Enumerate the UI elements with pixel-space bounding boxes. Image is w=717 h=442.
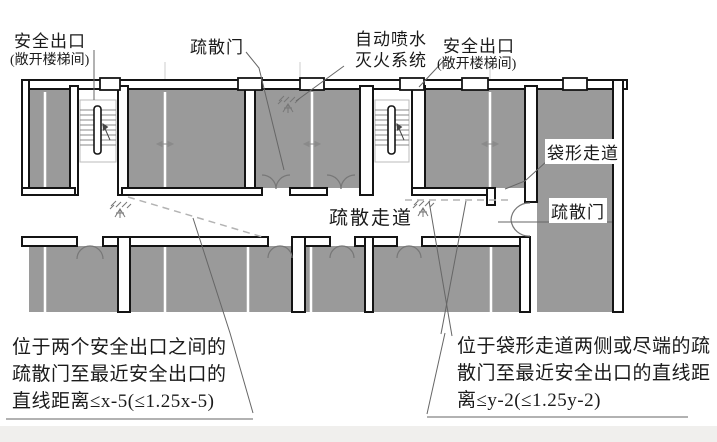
corridor-bottom-wall (22, 237, 77, 246)
room-top-4 (425, 90, 525, 188)
callout-right-line3: 离≤y-2(≤1.25y-2) (457, 387, 711, 414)
callout-left-line1: 位于两个安全出口之间的 (12, 334, 227, 361)
stair-handrail (388, 106, 395, 154)
label-dead-end-corridor: 袋形走道 (545, 139, 621, 164)
window-pier (300, 78, 324, 90)
window-pier (100, 78, 120, 90)
callout-right-slant-edge (427, 333, 445, 414)
room-top-3 (255, 90, 360, 188)
stair-direction-arrow-icon (103, 124, 110, 140)
page-bottom-strip (0, 426, 717, 442)
wall (525, 86, 537, 202)
wall (70, 86, 78, 195)
stairwell-left (80, 100, 116, 162)
wall (245, 86, 255, 195)
left-exterior-wall (22, 80, 29, 195)
label-evac-door-right: 疏散门 (549, 198, 607, 223)
window-pier (563, 78, 587, 90)
label-sprinkler-line1: 自动喷水 (355, 30, 427, 49)
callout-right-line2: 散门至最近安全出口的直线距 (457, 360, 711, 387)
label-evac-corridor: 疏散走道 (329, 203, 413, 230)
right-exterior-wall (613, 80, 623, 312)
window-pier (238, 78, 262, 90)
wall (118, 86, 128, 195)
callout-right-line1: 位于袋形走道两侧或尽端的疏 (457, 333, 711, 360)
corridor-top-wall (290, 188, 327, 195)
wall (520, 237, 530, 312)
callout-left-text: 位于两个安全出口之间的 疏散门至最近安全出口的 直线距离≤x-5(≤1.25x-… (12, 334, 227, 415)
stair-direction-arrow-icon (397, 124, 404, 140)
corridor-top-wall-stub (487, 188, 495, 205)
label-open-stairwell-right: (敞开楼梯间) (437, 53, 516, 73)
floor-plan-figure: 安全出口 (敞开楼梯间) 疏散门 自动喷水 灭火系统 安全出口 (敞开楼梯间) … (0, 0, 717, 442)
label-evac-door-top: 疏散门 (190, 33, 244, 58)
room-top-1 (29, 90, 70, 188)
callout-right-text: 位于袋形走道两侧或尽端的疏 散门至最近安全出口的直线距 离≤y-2(≤1.25y… (457, 333, 711, 414)
window-pier (400, 78, 424, 90)
wall (292, 237, 305, 312)
label-sprinkler-line2: 灭火系统 (355, 51, 427, 70)
stairwell-right (375, 100, 409, 162)
corridor-top-wall (22, 188, 75, 195)
stair-handrail (94, 106, 101, 154)
window-pier (462, 78, 488, 90)
label-sprinkler-system: 自动喷水 灭火系统 (342, 29, 440, 71)
sprinkler-icon (110, 201, 131, 218)
callout-left-line3: 直线距离≤x-5(≤1.25x-5) (12, 388, 227, 415)
room-bottom-3 (305, 246, 365, 312)
travel-distance-lines (128, 197, 513, 238)
wall (412, 86, 425, 195)
wall (360, 86, 373, 195)
corridor-bottom-wall (355, 237, 397, 246)
room-top-2 (128, 90, 245, 188)
dead-end-door-swing (511, 203, 530, 220)
wall (365, 237, 373, 312)
label-open-stairwell-left: (敞开楼梯间) (10, 49, 89, 69)
corridor-top-wall (122, 188, 262, 195)
corridor-top-wall (412, 188, 495, 195)
callout-left-line2: 疏散门至最近安全出口的 (12, 361, 227, 388)
room-bottom-1 (29, 246, 118, 312)
wall (118, 237, 130, 312)
